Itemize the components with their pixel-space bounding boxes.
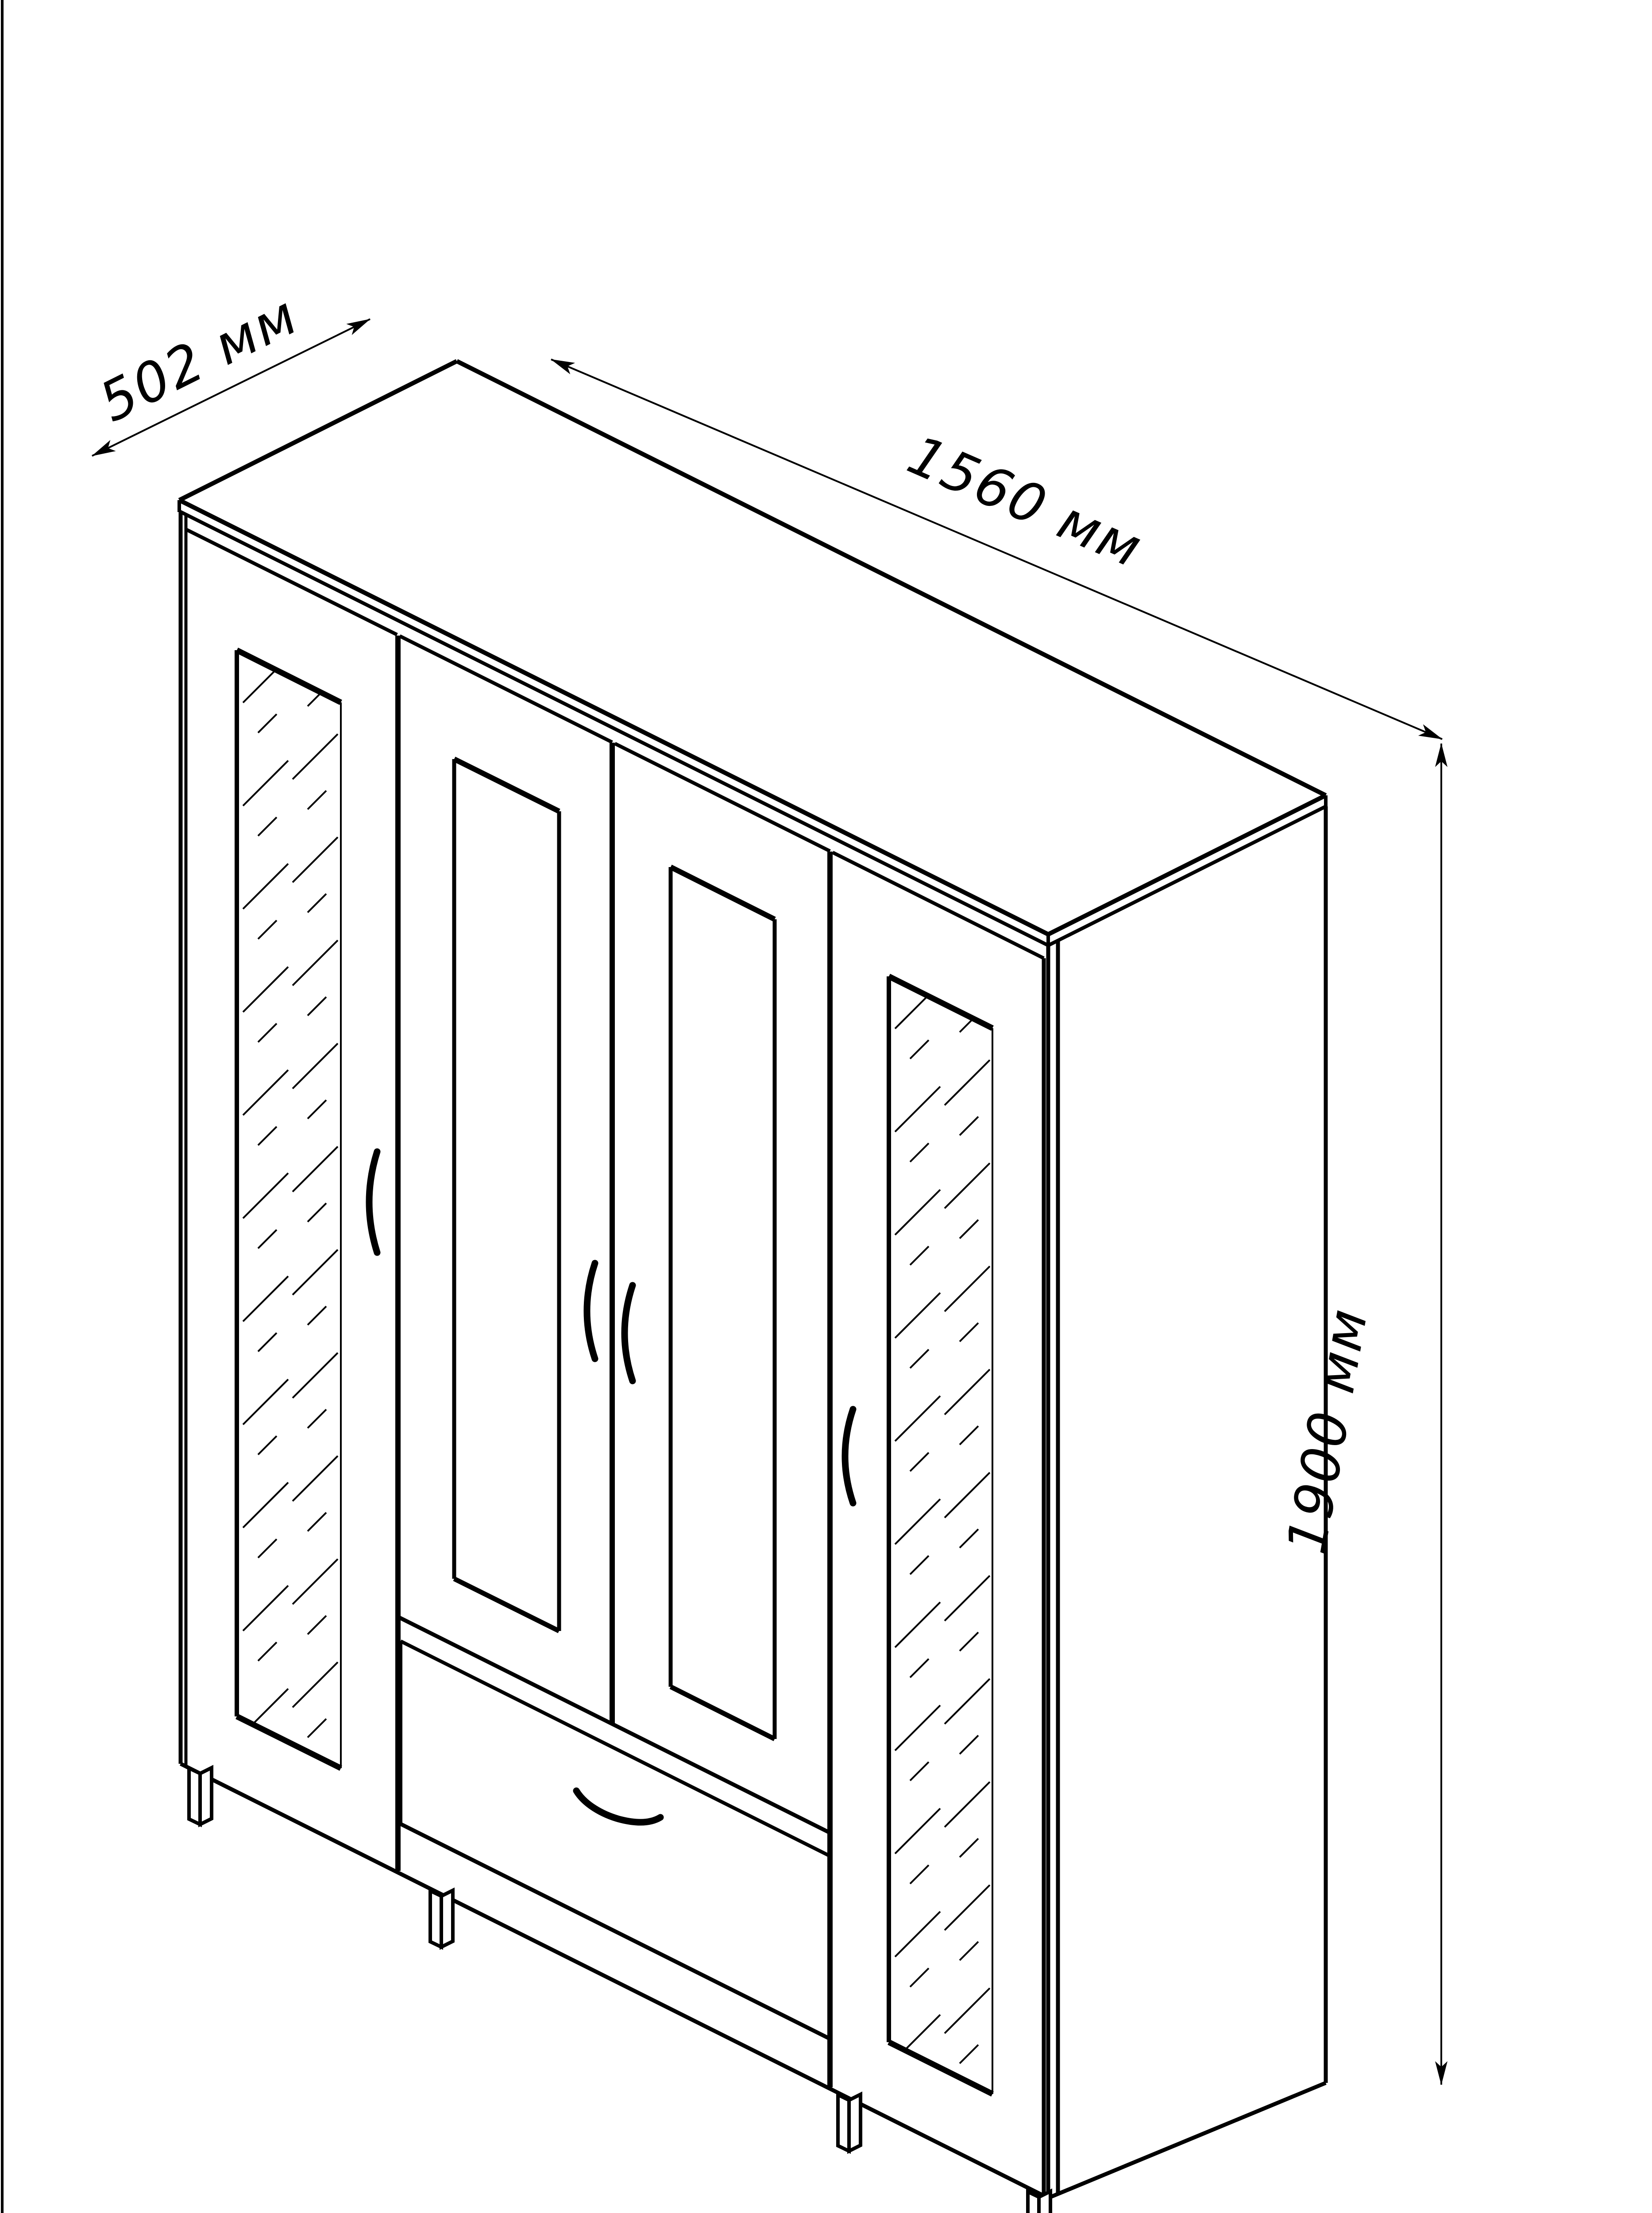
wardrobe-dimension-diagram: 502 мм 1560 мм 1900 мм bbox=[0, 0, 1652, 2213]
